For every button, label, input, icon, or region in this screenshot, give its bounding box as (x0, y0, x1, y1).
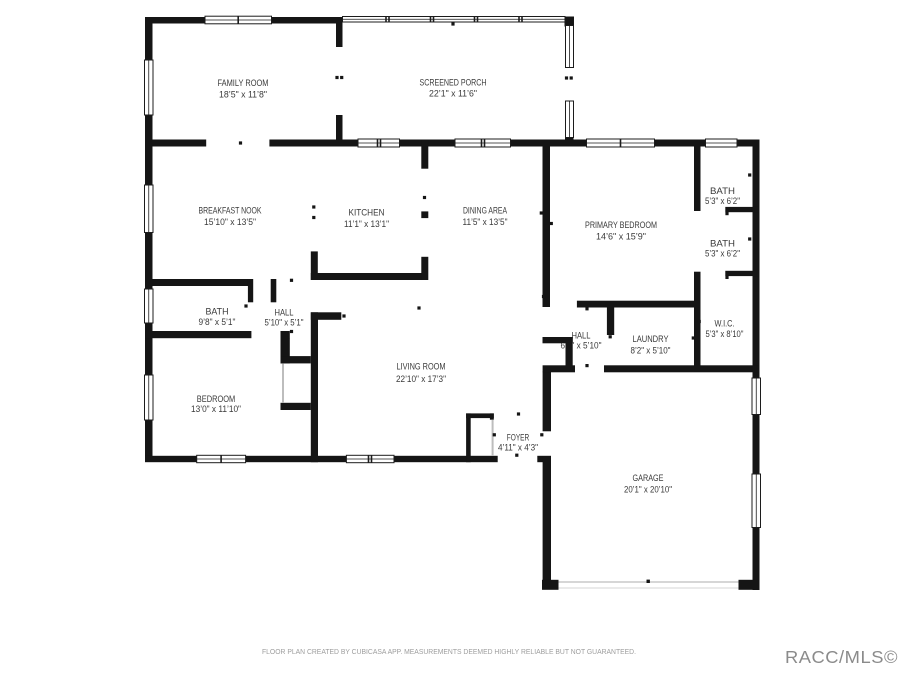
svg-text:LIVING ROOM: LIVING ROOM (397, 362, 446, 373)
svg-text:8’2" x 5’10": 8’2" x 5’10" (631, 346, 671, 356)
svg-text:PRIMARY BEDROOM: PRIMARY BEDROOM (585, 220, 657, 231)
svg-text:11’1" x 13’1": 11’1" x 13’1" (344, 219, 389, 229)
svg-text:LAUNDRY: LAUNDRY (633, 334, 669, 345)
svg-text:GARAGE: GARAGE (633, 473, 664, 484)
svg-text:SCREENED PORCH: SCREENED PORCH (420, 78, 487, 89)
svg-text:DINING AREA: DINING AREA (463, 206, 507, 217)
svg-text:5’3" x 6’2": 5’3" x 6’2" (705, 249, 740, 259)
svg-text:FLOOR PLAN CREATED BY CUBICASA: FLOOR PLAN CREATED BY CUBICASA APP. MEAS… (262, 649, 636, 656)
svg-text:14’6" x 15’9": 14’6" x 15’9" (596, 232, 646, 242)
svg-text:15’10" x 13’5": 15’10" x 13’5" (204, 217, 256, 227)
svg-text:18’5" x 11’8": 18’5" x 11’8" (219, 90, 267, 100)
svg-text:5’3" x 6’2": 5’3" x 6’2" (705, 196, 740, 206)
svg-text:RACC/MLS©: RACC/MLS© (785, 647, 898, 667)
svg-text:20’1" x 20’10": 20’1" x 20’10" (624, 485, 672, 495)
svg-text:5’3" x 8’10": 5’3" x 8’10" (706, 329, 744, 339)
svg-text:22’10" x 17’3": 22’10" x 17’3" (396, 374, 446, 384)
svg-text:11’5" x 13’5": 11’5" x 13’5" (463, 217, 508, 227)
svg-text:BREAKFAST NOOK: BREAKFAST NOOK (199, 206, 262, 217)
svg-text:BATH: BATH (206, 307, 229, 318)
svg-text:13’0" x 11’10": 13’0" x 11’10" (191, 404, 241, 414)
svg-text:22’1" x 11’6": 22’1" x 11’6" (429, 89, 477, 99)
svg-text:W.I.C.: W.I.C. (715, 319, 735, 330)
svg-text:FAMILY ROOM: FAMILY ROOM (218, 78, 269, 89)
svg-text:KITCHEN: KITCHEN (349, 208, 385, 219)
svg-text:9’8" x 5’1": 9’8" x 5’1" (199, 317, 236, 327)
svg-text:5’10" x 5’1": 5’10" x 5’1" (265, 318, 304, 328)
svg-text:4’11" x 4’3": 4’11" x 4’3" (498, 443, 538, 453)
